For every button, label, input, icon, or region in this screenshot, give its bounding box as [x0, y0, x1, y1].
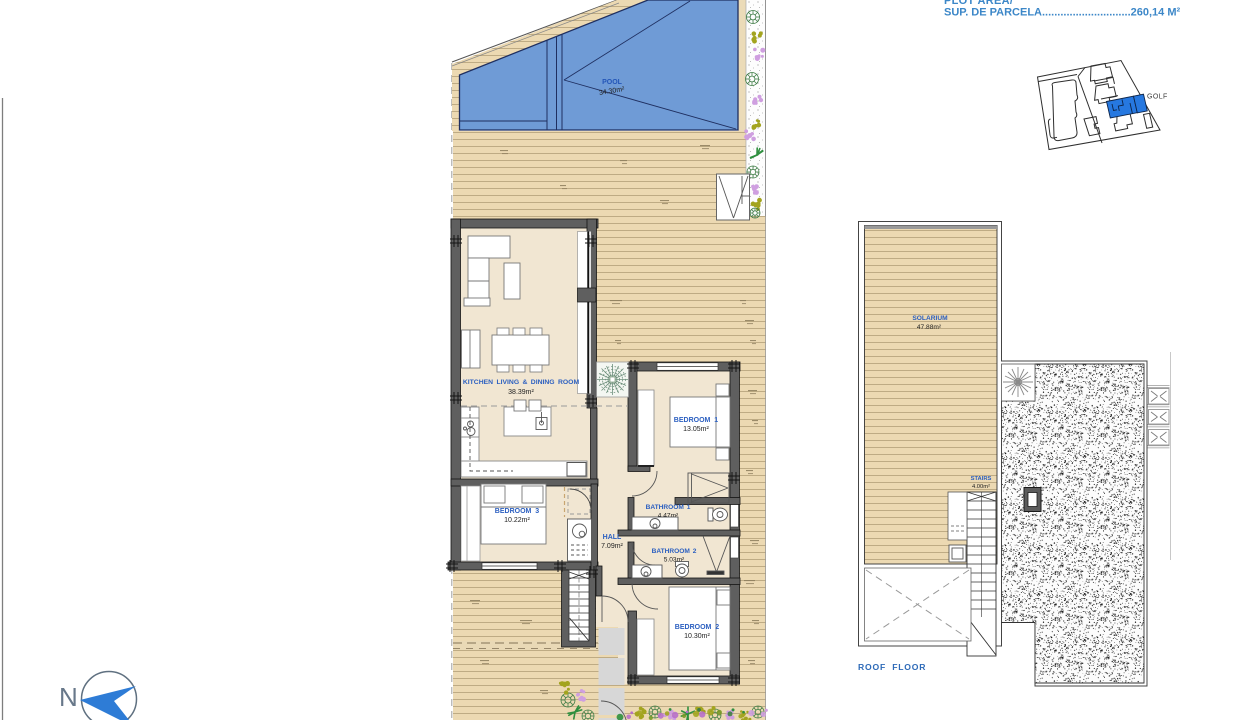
svg-text:ROOF FLOOR: ROOF FLOOR — [858, 662, 926, 672]
svg-text:KITCHEN LIVING & DINING R: KITCHEN LIVING & DINING ROOM — [463, 379, 580, 386]
svg-text:4.00m²: 4.00m² — [972, 484, 990, 490]
svg-text:7.09m²: 7.09m² — [601, 543, 623, 550]
svg-text:POOL: POOL — [602, 79, 623, 86]
svg-text:BATHROOM 1: BATHROOM 1 — [646, 504, 691, 511]
svg-text:BATHROOM 2: BATHROOM 2 — [652, 548, 697, 555]
svg-text:BEDROOM 2: BEDROOM 2 — [675, 624, 720, 631]
svg-text:38.39m²: 38.39m² — [508, 389, 534, 396]
svg-text:BEDROOM 3: BEDROOM 3 — [495, 508, 540, 515]
svg-text:47.88m²: 47.88m² — [917, 324, 942, 331]
svg-text:BEDROOM 1: BEDROOM 1 — [674, 417, 719, 424]
svg-text:10.30m²: 10.30m² — [684, 633, 710, 640]
svg-text:GOLF: GOLF — [1147, 94, 1168, 101]
svg-text:N: N — [59, 682, 78, 712]
svg-text:STAIRS: STAIRS — [971, 476, 992, 482]
svg-text:SUP. DE PARCELA...............: SUP. DE PARCELA.........................… — [944, 7, 1180, 19]
svg-text:13.05m²: 13.05m² — [683, 426, 709, 433]
svg-text:10.22m²: 10.22m² — [504, 517, 530, 524]
svg-text:SOLARIUM: SOLARIUM — [912, 315, 948, 322]
svg-text:HALL: HALL — [603, 534, 622, 541]
